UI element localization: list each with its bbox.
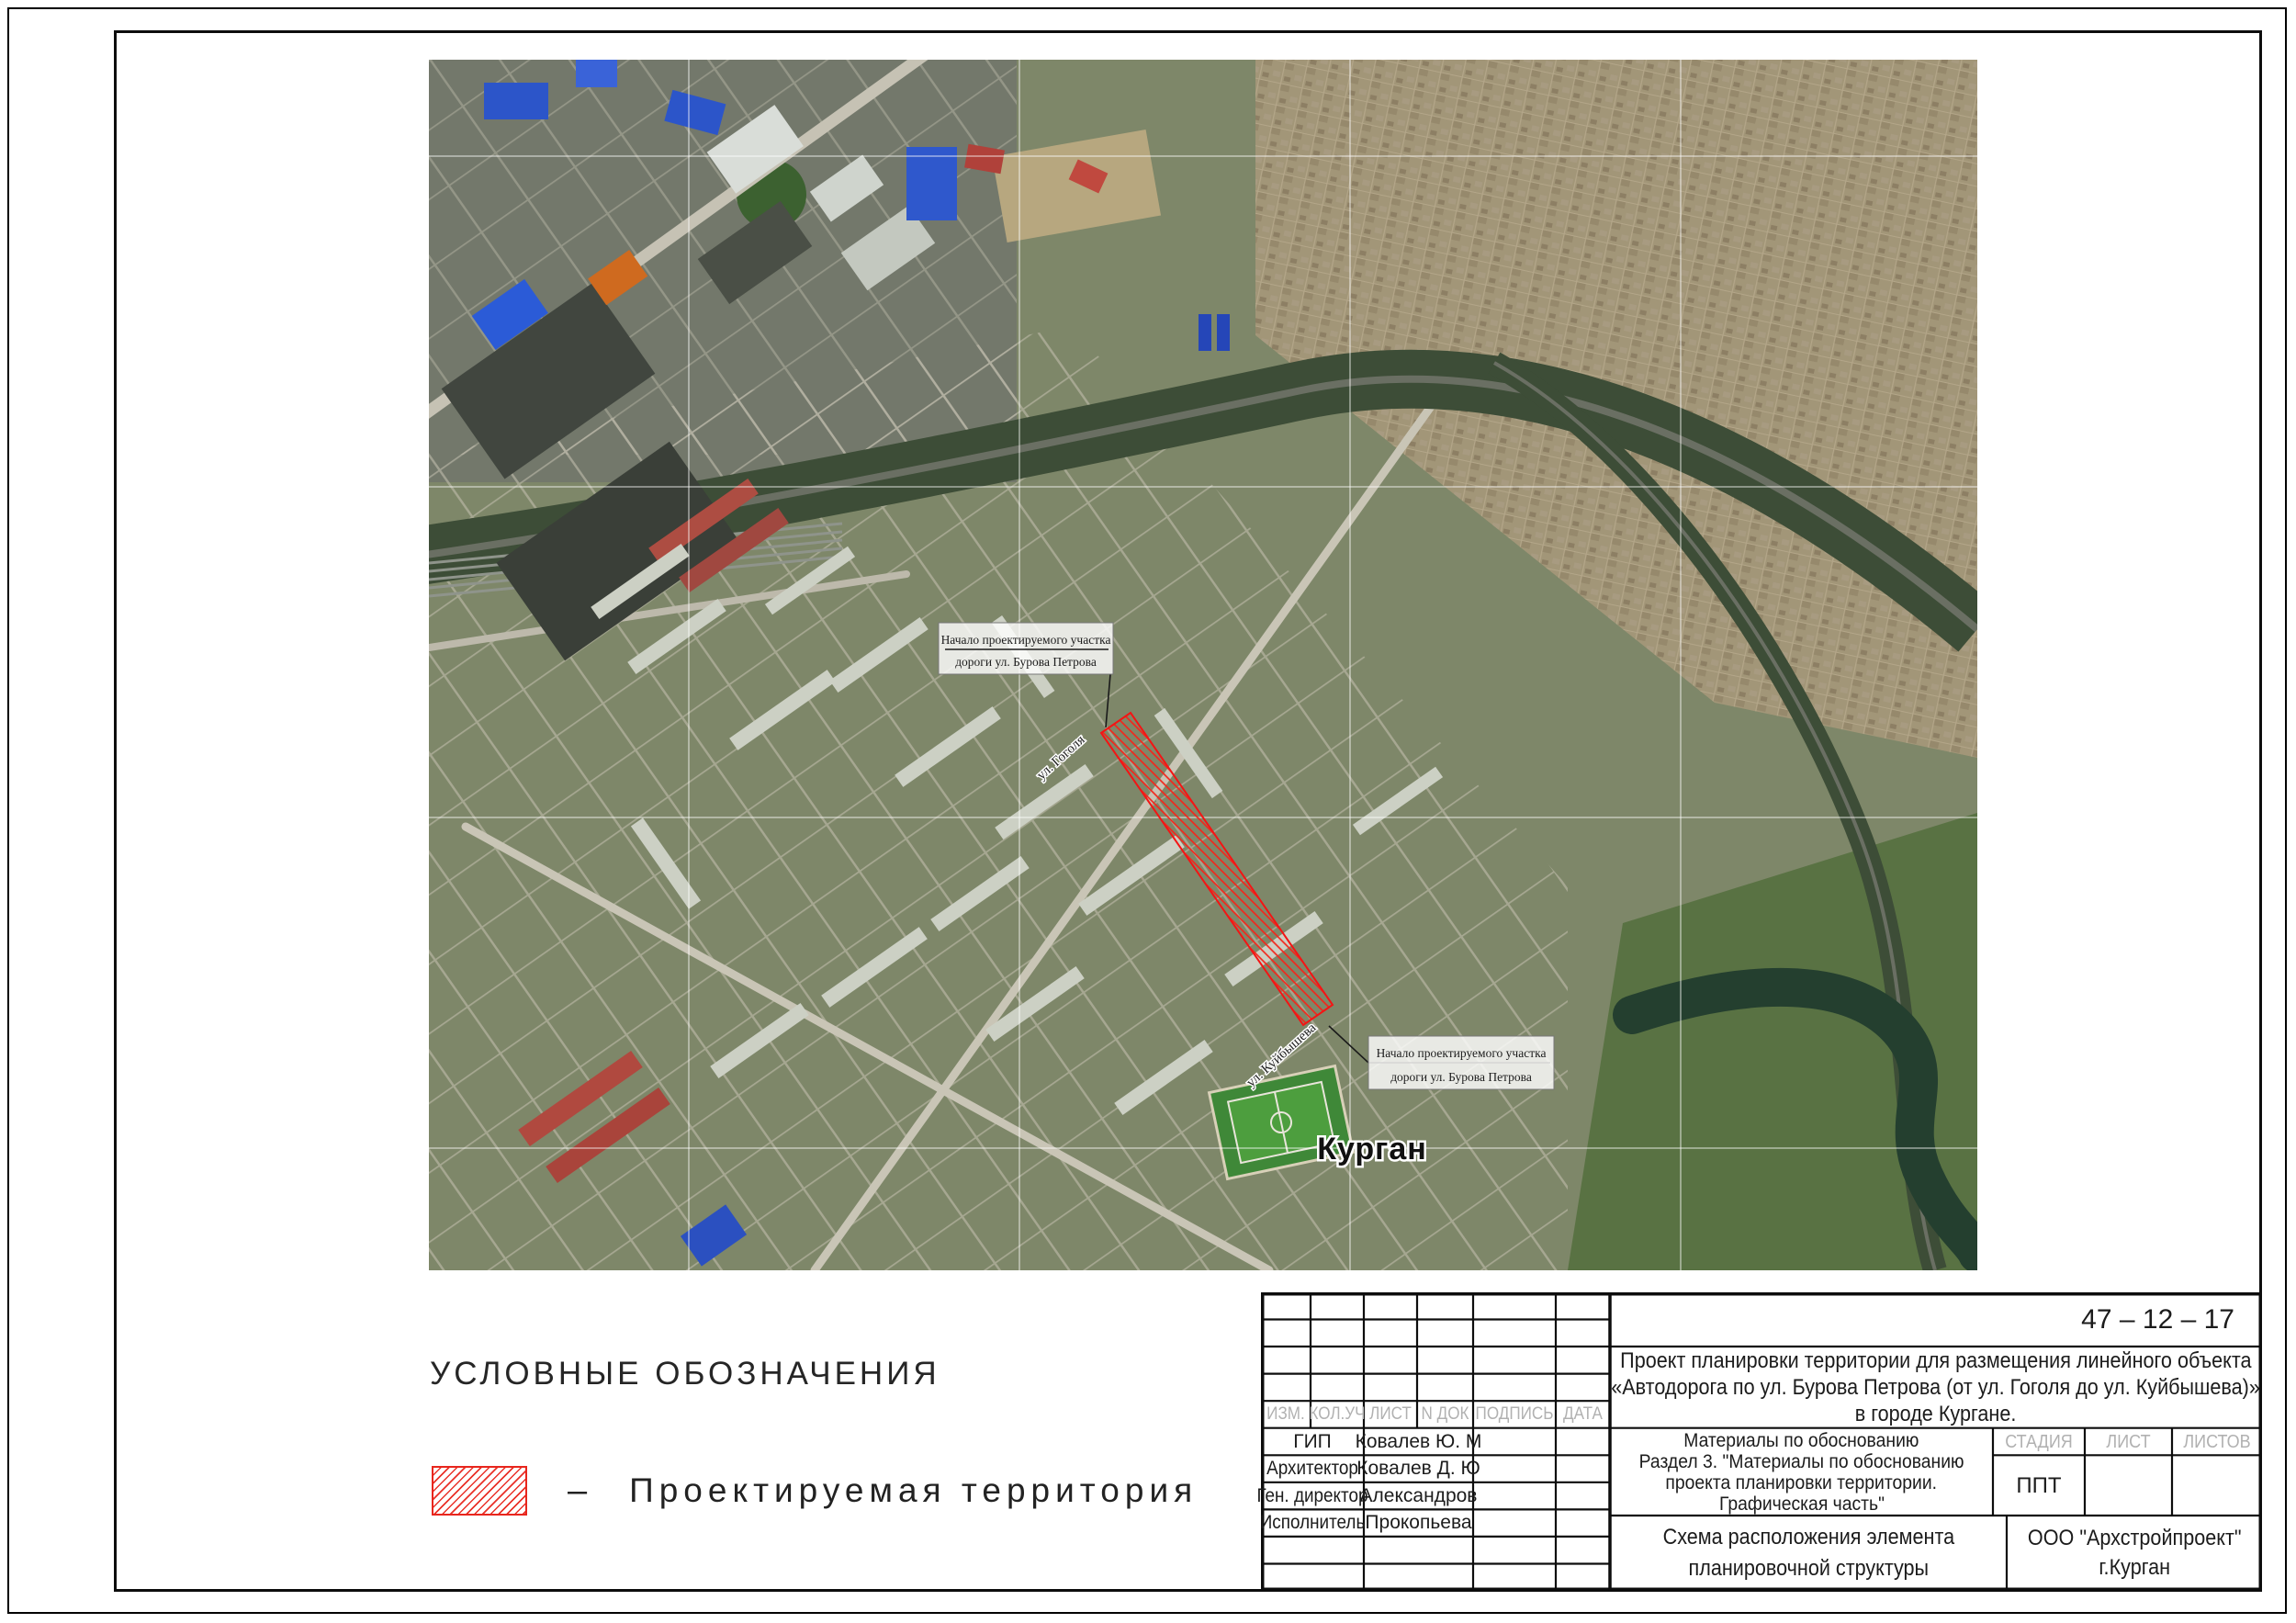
legend-item: – Проектируемая территория — [432, 1464, 1198, 1517]
tb-project-title: Проект планировки территории для размеще… — [1610, 1347, 2262, 1428]
title-block: ИЗМ. КОЛ.УЧ ЛИСТ N ДОК ПОДПИСЬ ДАТА ГИП … — [1261, 1292, 2262, 1591]
tb-role-gip: ГИП — [1261, 1428, 1364, 1455]
tb-role-architect: Архитектор — [1266, 1455, 1359, 1482]
tb-role-executor: Исполнитель — [1266, 1509, 1359, 1536]
tb-project-title-line2: «Автодорога по ул. Бурова Петрова (от ул… — [1612, 1374, 2261, 1401]
tb-section-line1: Материалы по обоснованию — [1683, 1430, 1919, 1451]
tb-name-gip: Ковалев Ю. М — [1364, 1428, 1473, 1455]
tb-header-koluch: КОЛ.УЧ — [1313, 1401, 1361, 1428]
tb-role-gendirector: Ген. директор — [1266, 1482, 1359, 1509]
tb-name-gendirector: Александров — [1364, 1482, 1473, 1509]
legend-title: УСЛОВНЫЕ ОБОЗНАЧЕНИЯ — [430, 1356, 940, 1392]
tb-section-line4: Графическая часть" — [1719, 1493, 1885, 1515]
tb-project-title-line3: в городе Кургане. — [1855, 1401, 2017, 1427]
tb-header-ndok: N ДОК — [1420, 1401, 1470, 1428]
tb-company-line2: г.Курган — [2099, 1553, 2170, 1583]
callout-box-start: Начало проектируемого участка дороги ул.… — [939, 623, 1113, 674]
tb-header-sheets-total: ЛИСТОВ — [2177, 1428, 2257, 1456]
tb-sheet-name-line1: Схема расположения элемента — [1662, 1522, 1953, 1553]
tb-name-executor: Прокопьева — [1364, 1509, 1473, 1536]
tb-header-izm: ИЗМ. — [1264, 1401, 1309, 1428]
legend-swatch-red-hatch — [432, 1466, 527, 1516]
city-label-kurgan: Курган — [1317, 1132, 1427, 1167]
tb-company-line1: ООО "Архстройпроект" — [2028, 1524, 2242, 1553]
callout-end-line1: Начало проектируемого участка — [1377, 1046, 1547, 1060]
tb-sheet-name-line2: планировочной структуры — [1688, 1553, 1929, 1584]
satellite-map: Начало проектируемого участка дороги ул.… — [429, 60, 1977, 1270]
tb-sheet-name: Схема расположения элемента планировочно… — [1610, 1516, 2007, 1591]
tb-header-data: ДАТА — [1559, 1401, 1607, 1428]
tb-project-title-line1: Проект планировки территории для размеще… — [1620, 1347, 2251, 1374]
callout-start-line2: дороги ул. Бурова Петрова — [955, 655, 1097, 669]
callout-box-end: Начало проектируемого участка дороги ул.… — [1368, 1036, 1554, 1089]
tb-section-line3: проекта планировки территории. — [1666, 1472, 1938, 1493]
tb-doc-number: 47 – 12 – 17 — [1610, 1292, 2262, 1347]
tb-header-sheet: ЛИСТ — [2089, 1428, 2168, 1456]
tb-section-name: Материалы по обоснованию Раздел 3. "Мате… — [1610, 1428, 1993, 1516]
tb-section-line2: Раздел 3. "Материалы по обоснованию — [1639, 1451, 1964, 1472]
callout-start-line1: Начало проектируемого участка — [941, 633, 1111, 647]
callout-end-line2: дороги ул. Бурова Петрова — [1390, 1070, 1532, 1084]
tb-company: ООО "Архстройпроект" г.Курган — [2007, 1516, 2262, 1591]
legend-dash: – — [568, 1471, 587, 1511]
legend-item-label: Проектируемая территория — [629, 1471, 1198, 1510]
drawing-sheet: Начало проектируемого участка дороги ул.… — [0, 0, 2296, 1623]
tb-header-podpis: ПОДПИСЬ — [1478, 1401, 1552, 1428]
tb-name-architect: Ковалев Д. Ю — [1364, 1455, 1473, 1482]
tb-header-stage: СТАДИЯ — [1998, 1428, 2080, 1456]
tb-stage-value: ППТ — [1993, 1456, 2085, 1516]
tb-header-list: ЛИСТ — [1367, 1401, 1414, 1428]
